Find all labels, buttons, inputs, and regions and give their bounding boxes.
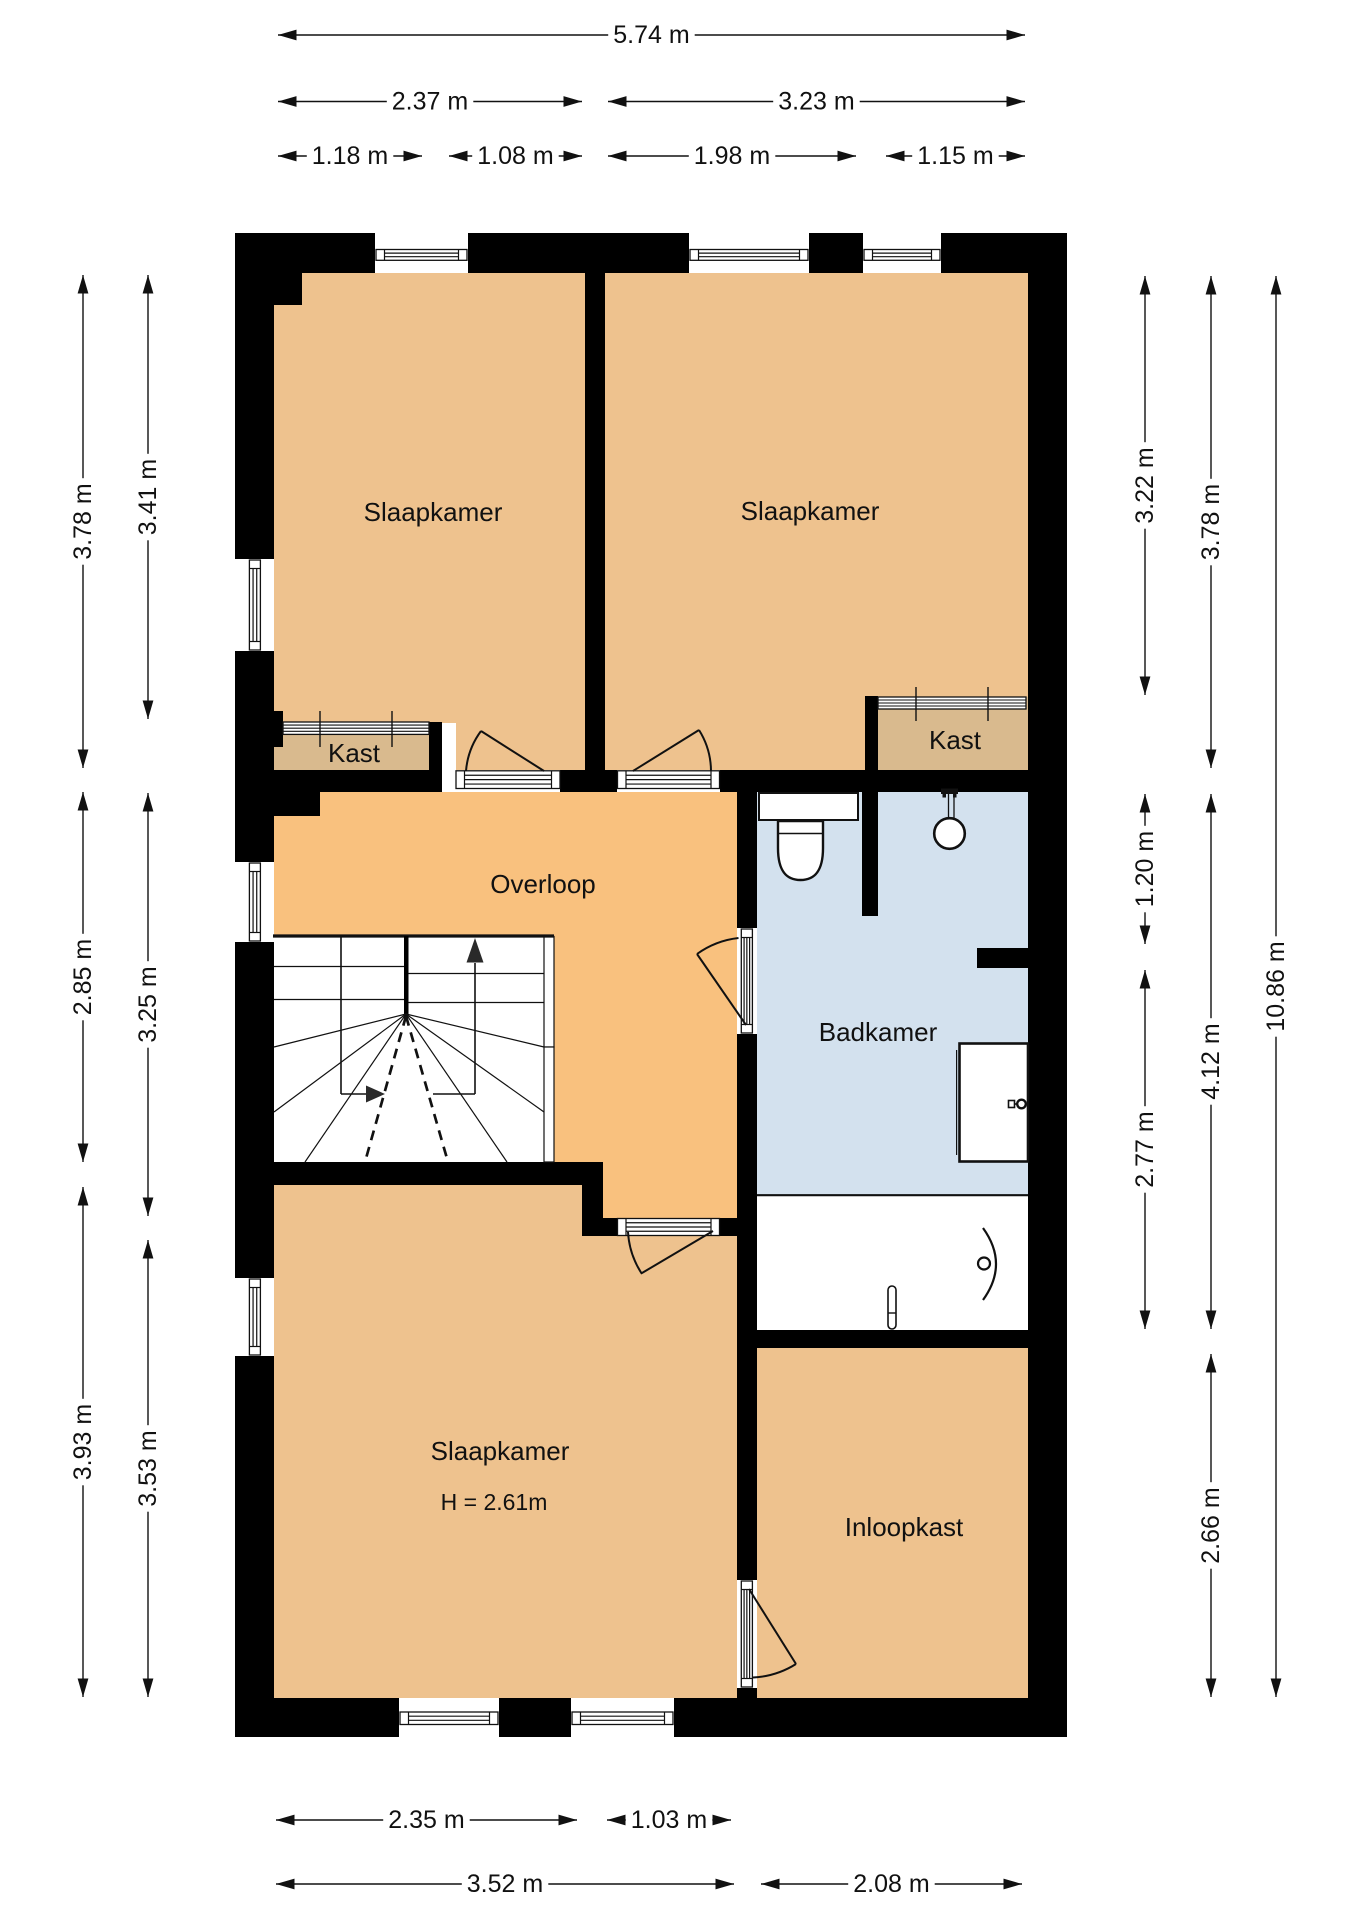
svg-text:3.23 m: 3.23 m xyxy=(778,88,854,116)
svg-text:1.03 m: 1.03 m xyxy=(631,1806,707,1834)
svg-text:H = 2.61m: H = 2.61m xyxy=(441,1489,548,1515)
svg-text:Slaapkamer: Slaapkamer xyxy=(741,496,880,526)
svg-text:10.86 m: 10.86 m xyxy=(1262,941,1290,1031)
svg-text:1.15 m: 1.15 m xyxy=(917,142,993,170)
svg-text:1.18 m: 1.18 m xyxy=(312,142,388,170)
svg-text:4.12 m: 4.12 m xyxy=(1197,1023,1225,1099)
svg-text:2.85 m: 2.85 m xyxy=(69,939,97,1015)
svg-text:1.08 m: 1.08 m xyxy=(477,142,553,170)
svg-text:Overloop: Overloop xyxy=(490,869,596,899)
svg-text:5.74 m: 5.74 m xyxy=(613,21,689,49)
svg-text:Kast: Kast xyxy=(929,725,982,755)
svg-text:1.20 m: 1.20 m xyxy=(1131,831,1159,907)
svg-text:3.93 m: 3.93 m xyxy=(69,1404,97,1480)
svg-text:Badkamer: Badkamer xyxy=(819,1017,938,1047)
svg-text:3.22 m: 3.22 m xyxy=(1131,447,1159,523)
svg-text:2.66 m: 2.66 m xyxy=(1197,1487,1225,1563)
svg-text:3.25 m: 3.25 m xyxy=(134,966,162,1042)
svg-text:2.08 m: 2.08 m xyxy=(853,1870,929,1898)
svg-text:3.78 m: 3.78 m xyxy=(69,483,97,559)
svg-text:3.52 m: 3.52 m xyxy=(467,1870,543,1898)
svg-text:2.35 m: 2.35 m xyxy=(388,1806,464,1834)
svg-text:3.41 m: 3.41 m xyxy=(134,459,162,535)
svg-text:Slaapkamer: Slaapkamer xyxy=(364,497,503,527)
svg-text:3.78 m: 3.78 m xyxy=(1197,484,1225,560)
svg-text:2.37 m: 2.37 m xyxy=(392,88,468,116)
svg-text:Inloopkast: Inloopkast xyxy=(845,1512,964,1542)
svg-text:1.98 m: 1.98 m xyxy=(694,142,770,170)
svg-text:2.77 m: 2.77 m xyxy=(1131,1111,1159,1187)
svg-text:3.53 m: 3.53 m xyxy=(134,1430,162,1506)
svg-text:Slaapkamer: Slaapkamer xyxy=(431,1436,570,1466)
svg-text:Kast: Kast xyxy=(328,738,381,768)
